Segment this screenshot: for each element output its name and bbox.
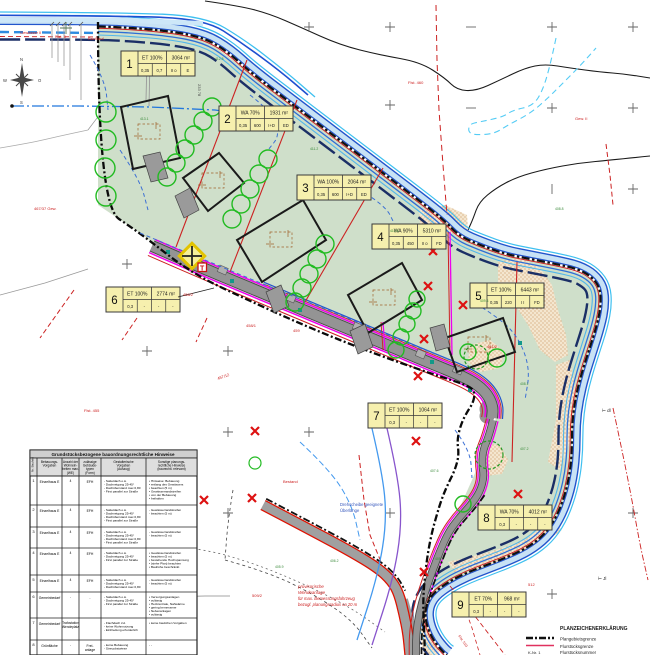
svg-text:Grünfläche: Grünfläche	[41, 644, 58, 648]
svg-text:0,35: 0,35	[141, 68, 150, 73]
svg-text:6443 m²: 6443 m²	[521, 288, 540, 294]
svg-text:4: 4	[377, 232, 384, 244]
svg-text:- beachten (5 m): - beachten (5 m)	[149, 582, 172, 586]
svg-text:WA 70%: WA 70%	[500, 510, 520, 516]
svg-text:EFH: EFH	[87, 509, 94, 513]
svg-text:Flst. 455: Flst. 455	[84, 408, 100, 413]
svg-text:Einzelhaus E: Einzelhaus E	[40, 509, 61, 513]
svg-text:-: -	[70, 595, 71, 599]
svg-text:W: W	[3, 78, 7, 83]
svg-text:- -: - -	[149, 643, 152, 647]
svg-text:0,35: 0,35	[490, 300, 499, 305]
svg-text:Wendeplatz: Wendeplatz	[62, 625, 79, 629]
svg-text:Gemeinbedarf: Gemeinbedarf	[39, 596, 61, 600]
svg-text:- First parallel zur Straße: - First parallel zur Straße	[104, 602, 138, 606]
svg-text:Einzelhaus E: Einzelhaus E	[40, 531, 61, 535]
svg-text:• zulässig: • zulässig	[149, 613, 162, 617]
svg-text:4: 4	[70, 508, 72, 512]
svg-text:EFH: EFH	[87, 531, 94, 535]
svg-text:0,3: 0,3	[473, 609, 479, 614]
svg-text:408.1: 408.1	[520, 382, 529, 386]
svg-text:WA 70%: WA 70%	[241, 111, 261, 117]
svg-text:0,35: 0,35	[317, 192, 326, 197]
svg-text:0,3: 0,3	[127, 304, 133, 309]
svg-text:0,3: 0,3	[389, 420, 395, 425]
svg-text:WA 100%: WA 100%	[317, 180, 339, 186]
svg-text:- beachten (5 m): - beachten (5 m)	[149, 534, 172, 538]
svg-text:S: S	[20, 100, 23, 105]
svg-text:-: -	[70, 643, 71, 647]
svg-text:0,35: 0,35	[239, 123, 248, 128]
svg-text:Einzelhaus E: Einzelhaus E	[40, 480, 61, 484]
svg-text:bezugl. planungsradius ca 20 m: bezugl. planungsradius ca 20 m	[298, 602, 358, 607]
svg-text:EFH: EFH	[87, 480, 94, 484]
svg-text:413.1: 413.1	[140, 117, 149, 121]
svg-text:2064 m²: 2064 m²	[348, 180, 367, 186]
svg-text:220: 220	[505, 300, 513, 305]
svg-text:Einzelhaus E: Einzelhaus E	[40, 552, 61, 556]
svg-text:- Dachüberstand max 0,80: - Dachüberstand max 0,80	[104, 585, 141, 589]
svg-text:Überlänge: Überlänge	[340, 508, 360, 513]
svg-text:- First parallel zur Straße: - First parallel zur Straße	[104, 541, 138, 545]
svg-text:512: 512	[528, 582, 535, 587]
svg-text:- Streuobstwiese: - Streuobstwiese	[104, 647, 127, 651]
svg-text:FD: FD	[534, 300, 540, 305]
svg-text:5310 m²: 5310 m²	[423, 229, 442, 235]
svg-text:- First parallel zur Straße: - First parallel zur Straße	[104, 558, 138, 562]
svg-text:406.2: 406.2	[330, 559, 339, 563]
svg-text:Grundstücksbezogene bauordnung: Grundstücksbezogene bauordnungsrechtlich…	[51, 452, 174, 457]
svg-text:467/37 Gew.: 467/37 Gew.	[34, 206, 56, 211]
svg-text:ED: ED	[283, 123, 289, 128]
svg-text:4: 4	[70, 530, 72, 534]
svg-text:1: 1	[126, 59, 132, 71]
svg-text:3: 3	[302, 183, 308, 195]
svg-text:Nr. Baufeld: Nr. Baufeld	[31, 457, 35, 472]
svg-text:600: 600	[254, 123, 262, 128]
svg-text:Flst. 3: Flst. 3	[55, 34, 67, 39]
svg-text:2: 2	[224, 114, 230, 126]
svg-text:⊢ Jl: ⊢ Jl	[598, 575, 606, 581]
svg-text:405.9: 405.9	[275, 565, 284, 569]
svg-text:Flst. 460: Flst. 460	[408, 80, 424, 85]
svg-text:provisorische: provisorische	[297, 584, 324, 589]
svg-text:450: 450	[407, 241, 415, 246]
svg-text:9: 9	[457, 600, 463, 612]
svg-text:509/2: 509/2	[252, 593, 263, 598]
svg-text:FD: FD	[436, 241, 442, 246]
svg-text:• freihalten: • freihalten	[149, 497, 164, 501]
svg-text:PLANZEICHENERKLÄRUNG: PLANZEICHENERKLÄRUNG	[560, 625, 628, 632]
svg-text:(Auszug): (Auszug)	[117, 467, 130, 471]
svg-text:Bestand: Bestand	[283, 479, 298, 484]
svg-text:II o: II o	[422, 241, 428, 246]
svg-text:Gew. II: Gew. II	[575, 116, 587, 121]
svg-text:Vorgaben: Vorgaben	[43, 464, 57, 468]
svg-text:Bachlauf: Bachlauf	[88, 36, 104, 41]
svg-text:-: -	[89, 596, 90, 600]
svg-text:ET 100%: ET 100%	[491, 288, 512, 294]
svg-text:(Form): (Form)	[85, 471, 95, 475]
svg-text:7: 7	[373, 411, 379, 423]
svg-text:N: N	[20, 57, 23, 62]
svg-text:ET 100%: ET 100%	[389, 408, 410, 414]
svg-text:Gewässer II: Gewässer II	[20, 30, 41, 35]
svg-text:411.2: 411.2	[310, 147, 318, 151]
svg-text:Plangebietsgrenze: Plangebietsgrenze	[560, 637, 597, 642]
svg-text:Wendeanlage: Wendeanlage	[298, 590, 326, 595]
svg-text:1064 m²: 1064 m²	[419, 408, 438, 414]
svg-text:- First parallel zur Straße: - First parallel zur Straße	[104, 519, 138, 523]
svg-text:407.2: 407.2	[520, 447, 529, 451]
svg-text:EFH: EFH	[87, 579, 94, 583]
svg-text:233 78: 233 78	[197, 84, 202, 97]
svg-text:0,7: 0,7	[156, 68, 162, 73]
svg-text:3064 m²: 3064 m²	[172, 56, 191, 62]
svg-text:8: 8	[483, 513, 489, 525]
svg-text:• keine baulichen Vorgaben: • keine baulichen Vorgaben	[149, 621, 187, 625]
svg-text:ET 100%: ET 100%	[127, 292, 148, 298]
svg-text:I+D: I+D	[268, 123, 275, 128]
svg-text:409.4: 409.4	[480, 299, 489, 303]
svg-text:4: 4	[70, 551, 72, 555]
svg-text:Flurstücksnummer: Flurstücksnummer	[560, 650, 597, 655]
svg-text:(WE): (WE)	[67, 471, 74, 475]
svg-text:E: E	[186, 68, 189, 73]
svg-text:ET 100%: ET 100%	[142, 56, 163, 62]
svg-text:0,35: 0,35	[392, 241, 401, 246]
svg-text:4012 m²: 4012 m²	[529, 510, 548, 516]
svg-text:• Bauhöhe beschränkt: • Bauhöhe beschränkt	[149, 565, 179, 569]
svg-text:Flurstücksgrenze: Flurstücksgrenze	[560, 644, 594, 649]
svg-text:0,3: 0,3	[499, 522, 505, 527]
svg-text:407.6: 407.6	[430, 469, 439, 473]
svg-text:405.1: 405.1	[435, 557, 444, 561]
svg-text:T: T	[200, 265, 205, 272]
svg-text:600: 600	[332, 192, 340, 197]
svg-text:- beachten (5 m): - beachten (5 m)	[149, 512, 172, 516]
svg-text:⊢ dl: ⊢ dl	[602, 407, 611, 413]
svg-text:Gemeinbedarf: Gemeinbedarf	[39, 622, 61, 626]
svg-text:410.8: 410.8	[390, 229, 399, 233]
svg-text:461/2: 461/2	[487, 344, 498, 349]
svg-text:4: 4	[70, 479, 72, 483]
svg-text:anlage: anlage	[85, 648, 95, 652]
svg-text:2774 m²: 2774 m²	[157, 292, 176, 298]
svg-text:- First parallel zur Straße: - First parallel zur Straße	[104, 490, 138, 494]
svg-text:408.8: 408.8	[555, 207, 564, 211]
svg-text:459: 459	[293, 328, 300, 333]
svg-text:I I: I I	[521, 300, 525, 305]
svg-text:K-Nr. 1: K-Nr. 1	[528, 650, 541, 655]
svg-text:für max. Bemessungsfahrzeug: für max. Bemessungsfahrzeug	[298, 596, 355, 601]
svg-text:458/1: 458/1	[246, 323, 257, 328]
svg-text:(baurechtl. relevant): (baurechtl. relevant)	[157, 467, 185, 471]
svg-text:4: 4	[70, 578, 72, 582]
svg-text:456/2: 456/2	[183, 292, 194, 297]
svg-text:Einzelhaus E: Einzelhaus E	[40, 579, 61, 583]
svg-text:- Einfriedung erforderlich: - Einfriedung erforderlich	[104, 628, 138, 632]
svg-text:Drehscheibe geeignete: Drehscheibe geeignete	[340, 502, 384, 507]
svg-text:6: 6	[111, 295, 117, 307]
svg-text:I+D: I+D	[346, 192, 353, 197]
svg-text:1931 m²: 1931 m²	[270, 111, 289, 117]
svg-text:EFH: EFH	[87, 552, 94, 556]
svg-text:ET 70%: ET 70%	[474, 597, 492, 603]
svg-text:968 m²: 968 m²	[504, 597, 520, 603]
svg-text:ED: ED	[361, 192, 367, 197]
svg-text:412.5: 412.5	[215, 57, 224, 61]
svg-text:II o: II o	[171, 68, 177, 73]
